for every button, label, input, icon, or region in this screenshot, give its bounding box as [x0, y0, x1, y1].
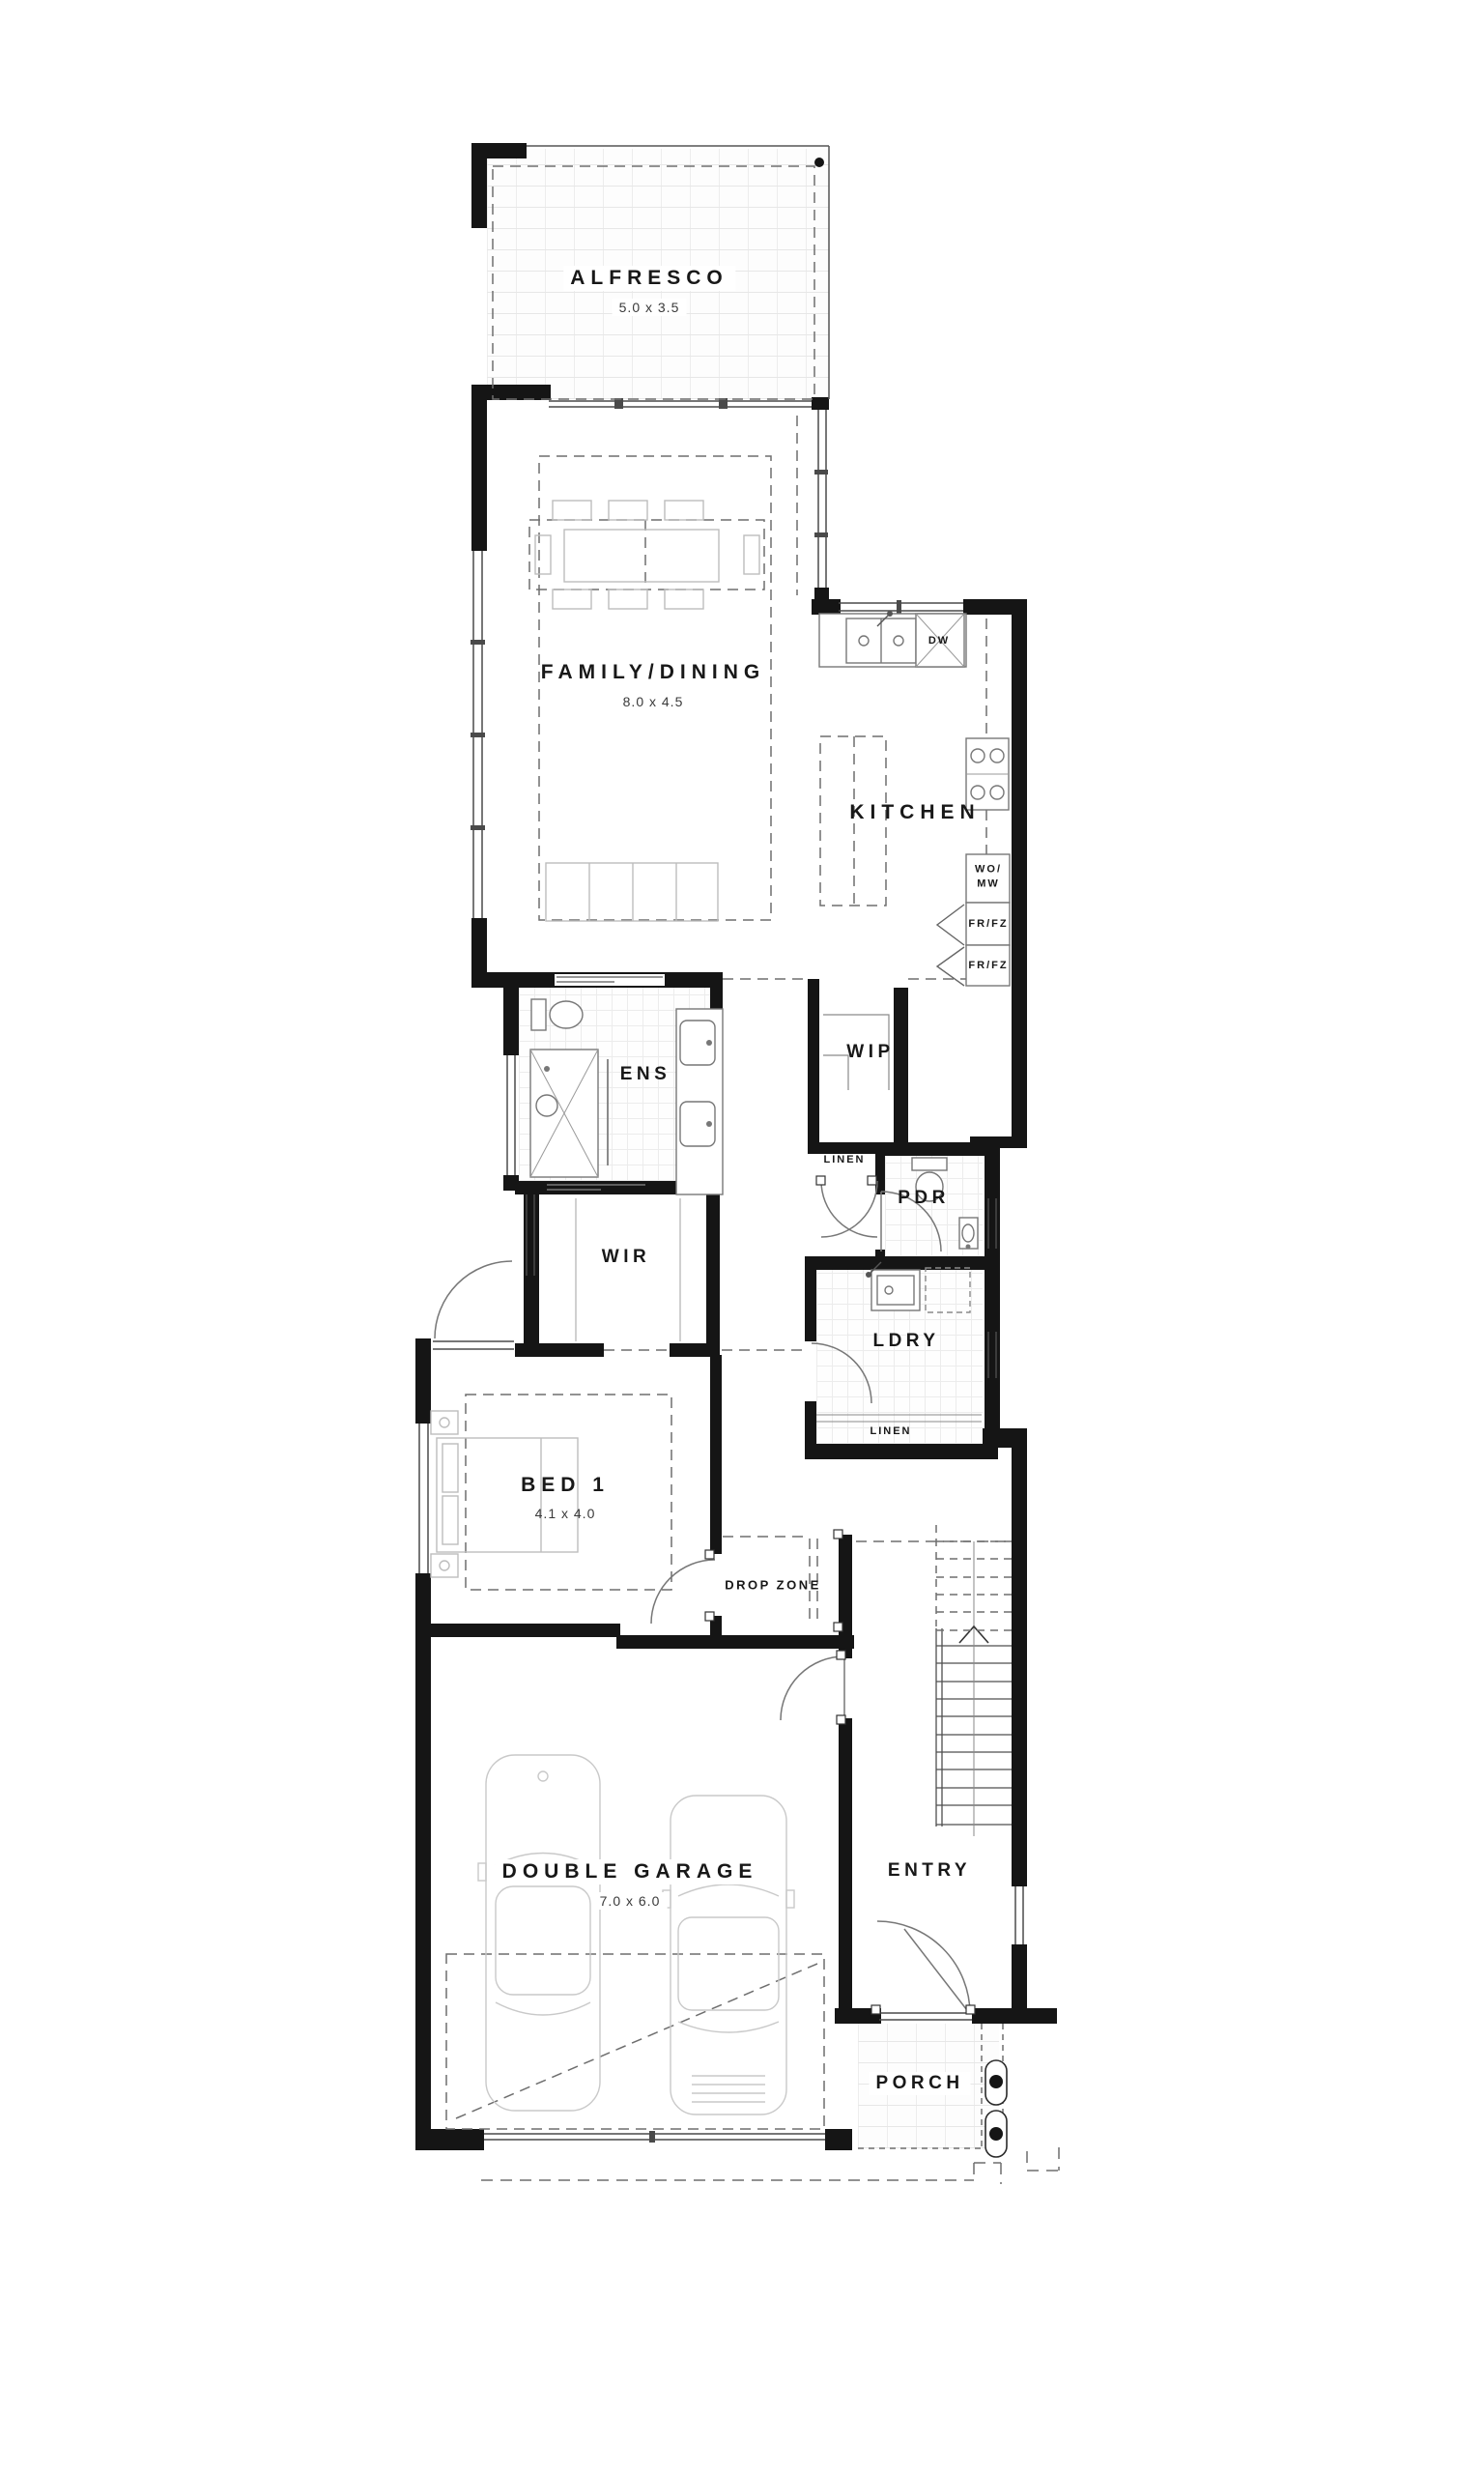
family-dining-dims: 8.0 x 4.5: [623, 694, 684, 709]
front-door-arc: [877, 1921, 970, 2014]
ens-vanity: [676, 1009, 723, 1194]
bed1-courtyard-door-arc: [435, 1261, 512, 1338]
garage-car-right: [663, 1796, 794, 2114]
linen-door-arc-left: [821, 1181, 877, 1237]
garage-entry-door-arc: [781, 1656, 844, 1720]
garage-dims: 7.0 x 6.0: [593, 1892, 668, 1910]
site-boundary-dashed: [481, 2147, 1059, 2184]
ldry-door-arc: [812, 1343, 871, 1403]
ens-shower: [530, 1050, 608, 1177]
plan-linework: [0, 0, 1484, 2474]
linen-lower-shelf: [816, 1415, 982, 1422]
entry-label: ENTRY: [888, 1860, 971, 1882]
wir-rails: [576, 1198, 680, 1341]
linen-lower-label: LINEN: [870, 1425, 912, 1437]
ens-toilet: [531, 999, 583, 1030]
kitchen-label: KITCHEN: [849, 801, 980, 824]
pdr-label: PDR: [898, 1188, 950, 1209]
cooktop: [966, 738, 1009, 810]
fixtures: [530, 611, 1010, 2157]
dishwasher-label: DW: [928, 635, 950, 647]
floor-plan-canvas: ALFRESCO 5.0 x 3.5 FAMILY/DINING 8.0 x 4…: [0, 0, 1484, 2474]
family-zone-dashed: [539, 456, 771, 920]
bed1-dims: 4.1 x 4.0: [535, 1506, 596, 1521]
garage-car-left: [478, 1755, 608, 2111]
staircase: [936, 1541, 1012, 1836]
fridge-freezer-upper-label: FR/FZ: [968, 918, 1008, 930]
mw-line: MW: [975, 877, 1002, 892]
bed1-label: BED 1: [521, 1474, 610, 1497]
ldry-label: LDRY: [872, 1331, 939, 1352]
garage-label: DOUBLE GARAGE: [496, 1859, 765, 1884]
drop-zone-label: DROP ZONE: [725, 1578, 821, 1593]
pdr-basin: [959, 1218, 978, 1250]
dining-setting: [535, 501, 759, 609]
ldry-washer-dashed: [926, 1268, 970, 1312]
downpipe-dot: [814, 158, 824, 167]
family-sideboard: [546, 863, 718, 921]
wall-oven-microwave-label: WO/ MW: [975, 863, 1002, 893]
family-dining-label: FAMILY/DINING: [541, 661, 765, 684]
wo-line: WO/: [975, 863, 1002, 877]
walls: [415, 143, 1057, 2150]
kitchen-sink: [846, 611, 916, 663]
ldry-trough: [866, 1262, 920, 1310]
alfresco-label: ALFRESCO: [563, 266, 735, 291]
linen-upper-label: LINEN: [824, 1154, 866, 1165]
porch-label: PORCH: [869, 2072, 970, 2095]
wip-label: WIP: [846, 1042, 894, 1063]
linen-door-arc-right: [821, 1181, 877, 1237]
fridge-freezer-lower-label: FR/FZ: [968, 960, 1008, 971]
ens-label: ENS: [620, 1064, 671, 1085]
alfresco-dims: 5.0 x 3.5: [613, 299, 687, 316]
wir-label: WIR: [602, 1247, 650, 1268]
